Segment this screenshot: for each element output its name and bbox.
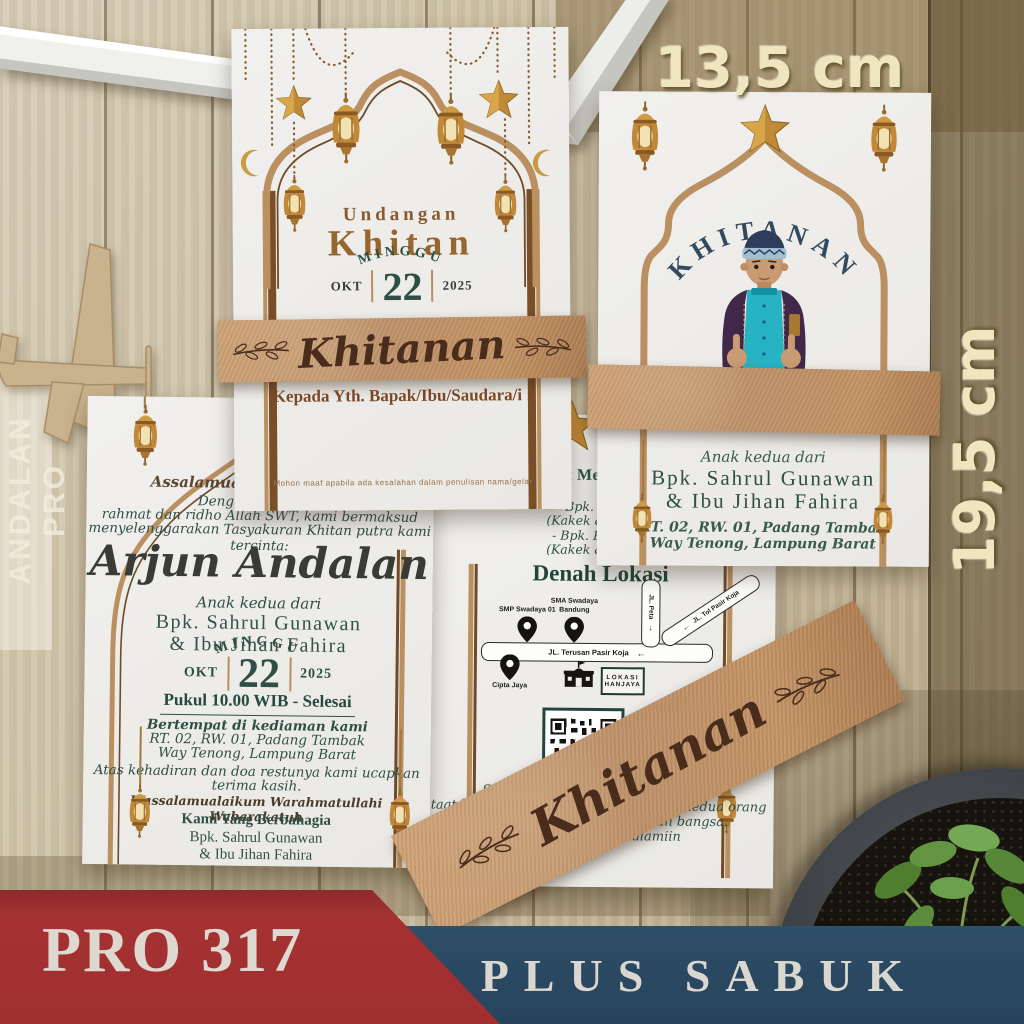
- date-divider: [289, 657, 291, 691]
- map-pin-icon: [500, 654, 520, 680]
- front-card: Undangan Khitan MINGGU OKT 22 2025 Kepad…: [231, 27, 571, 511]
- gold-star-icon: [740, 104, 790, 154]
- lantern-icon: [625, 101, 665, 171]
- venue-building-icon: [561, 661, 597, 689]
- time-line: Pukul 10.00 WIB - Selesai: [84, 689, 431, 713]
- front-card-belt: Khitanan: [218, 315, 587, 382]
- child-name: Arjun Andalan: [86, 536, 434, 589]
- date-divider: [227, 657, 229, 691]
- width-dimension-label: 13,5 cm: [655, 36, 904, 101]
- feature-banner-text: PLUS SABUK: [481, 949, 919, 1002]
- boy-photo: [699, 218, 830, 384]
- lantern-icon: [865, 105, 903, 173]
- lantern-icon: [628, 493, 656, 543]
- lantern-icon: [124, 784, 155, 838]
- date-divider: [431, 270, 433, 302]
- road-main-label: JL. Terusan Pasir Koja: [548, 648, 628, 658]
- down-arrow-icon: ↓: [649, 623, 653, 632]
- year-label: 2025: [300, 667, 332, 683]
- date-divider: [371, 270, 373, 302]
- belt-script-text: Khitanan: [297, 320, 507, 377]
- date-number: 22: [382, 262, 422, 309]
- left-arrow-icon: ←: [637, 648, 646, 658]
- lantern-string: [642, 439, 644, 497]
- year-label: 2025: [443, 278, 473, 294]
- map-pin-icon: [564, 617, 584, 643]
- map-pin-icon: [517, 616, 537, 642]
- recipient-line: Kepada Yth. Bapak/Ibu/Saudara/i :: [234, 385, 571, 407]
- apology-note: Mohon maaf apabila ada kesalahan dalam p…: [234, 477, 571, 488]
- venue-location-box: LOKASI HANJAYA: [601, 667, 645, 695]
- month-label: OKT: [184, 665, 218, 681]
- leaf-sprig-icon: [446, 816, 531, 882]
- product-photo-canvas: ANDALAN PRO Turut Mengundang - Bpk. Kasm…: [0, 0, 1024, 1024]
- photo-card: KHITANAN Anak kedua: [597, 91, 931, 567]
- child-order: Anak kedua dari: [597, 447, 929, 467]
- leaf-sprig-icon: [230, 337, 292, 366]
- pin-sma-label1: SMA Swadaya: [534, 597, 614, 605]
- month-label: OKT: [331, 278, 363, 294]
- pin-cipta-label: Cipta Jaya: [470, 682, 550, 690]
- lantern-icon: [869, 495, 897, 545]
- venue-box-line2: HANJAYA: [605, 681, 641, 688]
- leaf-sprig-icon: [512, 333, 574, 362]
- lantern-icon: [127, 404, 164, 466]
- brand-watermark: ANDALAN PRO: [4, 380, 44, 620]
- road-jl-peta: JL. Peta ↓: [641, 579, 661, 647]
- photo-card-belt: [587, 364, 940, 435]
- road-tol-label: JL. Tol Pasir Koja: [692, 589, 741, 625]
- series-banner-text: PRO 317: [0, 913, 303, 1001]
- height-dimension-label: 19,5 cm: [943, 240, 1013, 660]
- pin-sma-label2: Bandung: [534, 606, 614, 614]
- date-block: OKT 22 2025: [233, 265, 570, 307]
- left-arrow-icon: ←: [680, 621, 692, 633]
- road-peta-label: JL. Peta: [647, 594, 654, 619]
- leaf-sprig-icon: [765, 654, 850, 720]
- lantern-string: [883, 441, 885, 499]
